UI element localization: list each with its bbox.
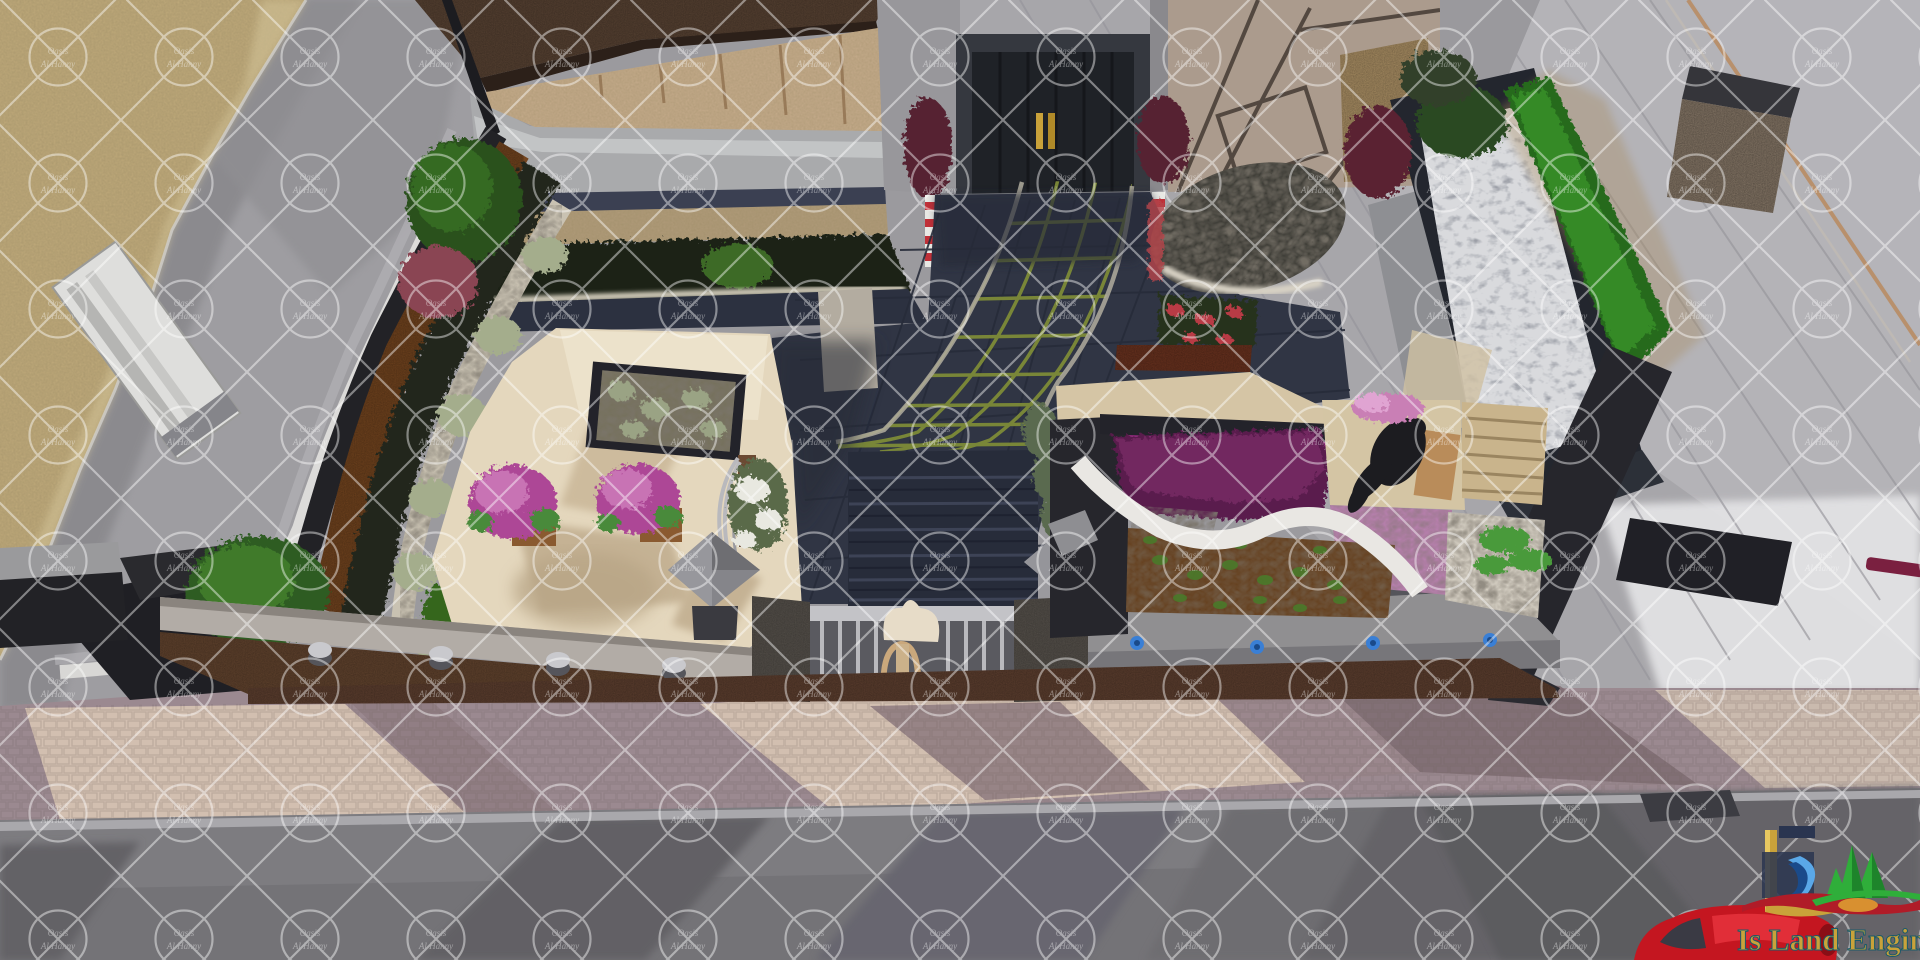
svg-text:Is Land Engineer: Is Land Engineer	[1737, 922, 1920, 957]
